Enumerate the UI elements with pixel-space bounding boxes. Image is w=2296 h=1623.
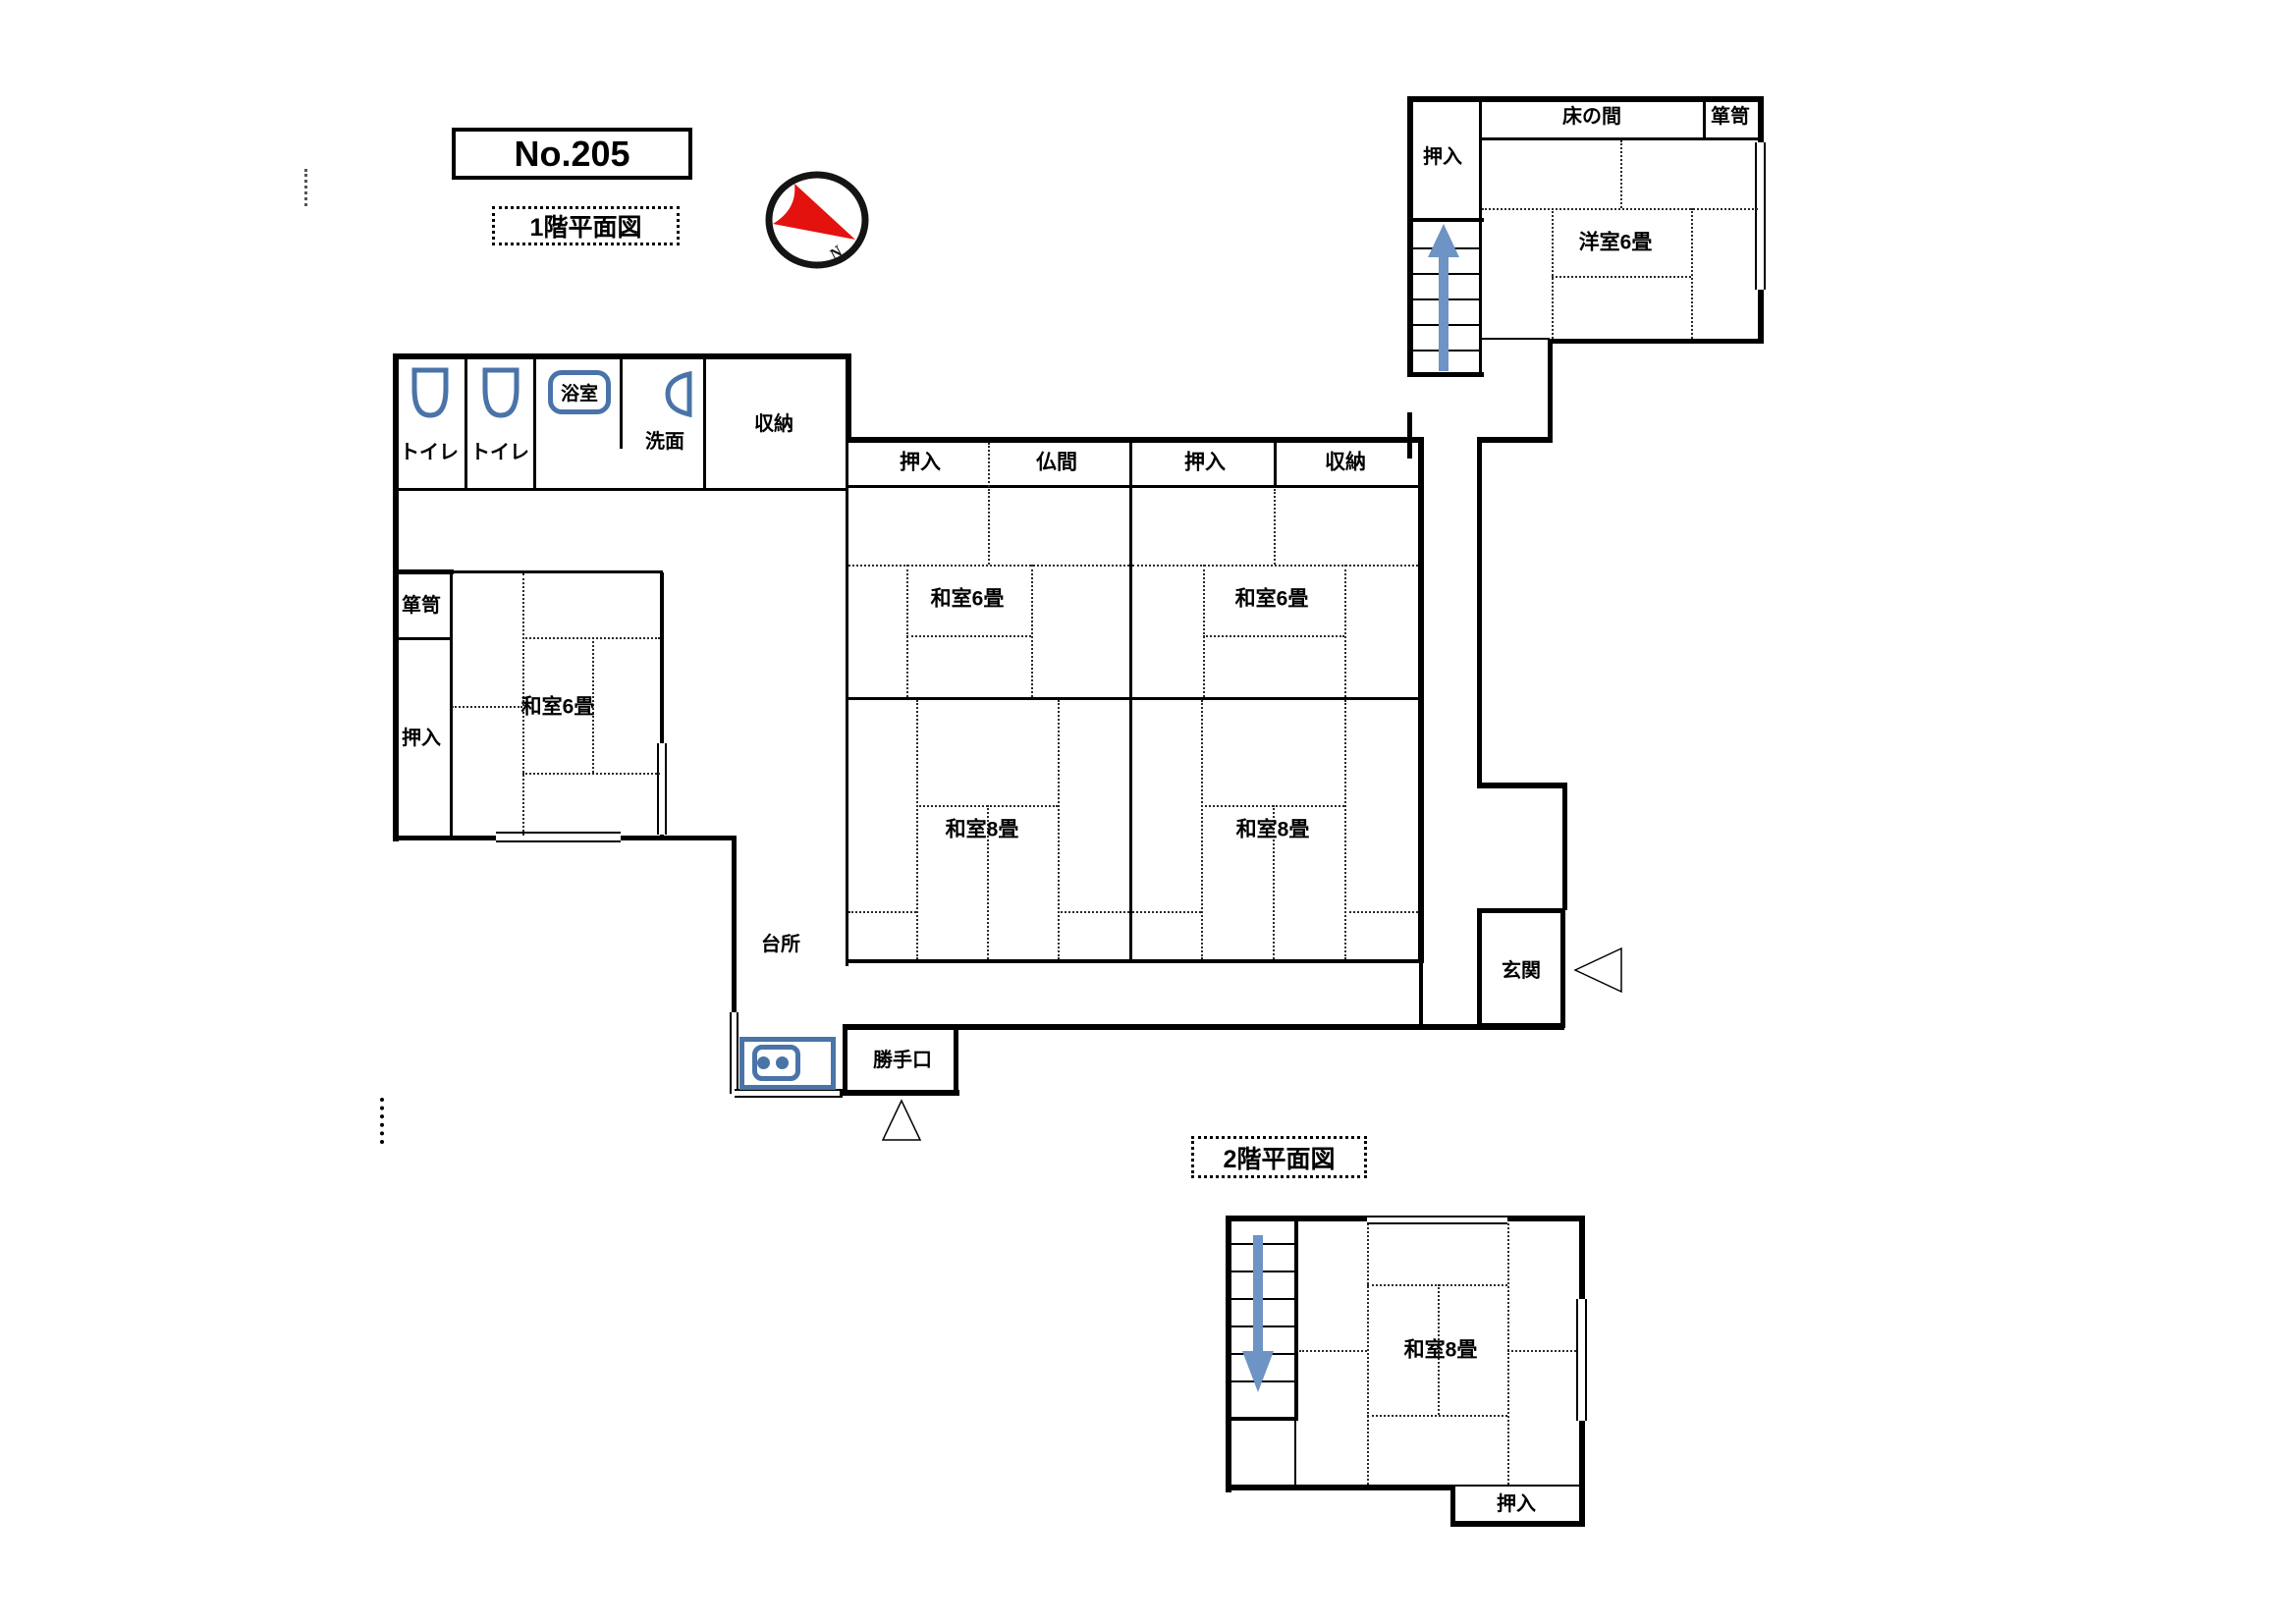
room-washitsu8-2f: 和室8畳: [1404, 1340, 1478, 1361]
room-yoshitsu6: 洋室6畳: [1579, 233, 1653, 253]
wall-segment: [1479, 221, 1482, 377]
entrance-box: 玄関: [1477, 908, 1565, 1028]
wall-segment: [450, 571, 453, 839]
tansu-west: 箪笥: [402, 596, 441, 616]
tatami-line: [1552, 276, 1691, 278]
wall-segment: [1407, 96, 1763, 102]
tatami-line: [1552, 208, 1554, 339]
wall-segment: [846, 443, 848, 966]
floor1-caption: 1階平面図: [530, 208, 642, 243]
wall-segment: [1550, 339, 1763, 344]
plan-number: No.205: [514, 134, 629, 175]
window: [1576, 1299, 1587, 1421]
storage-center: 収納: [1325, 453, 1366, 473]
stairs-up-arrow: [1426, 222, 1461, 375]
wall-segment: [840, 1090, 959, 1096]
closet-b: 押入: [1184, 453, 1226, 473]
compass-icon: N: [761, 167, 874, 275]
tatami-line: [522, 773, 660, 775]
window: [735, 1089, 843, 1098]
window: [730, 1012, 738, 1094]
tatami-line: [916, 700, 918, 959]
tatami-line: [848, 911, 916, 913]
tatami-line: [1299, 1350, 1367, 1352]
tatami-line: [1058, 700, 1060, 959]
room-washstand: 洗面: [645, 432, 684, 452]
wall-segment: [846, 353, 851, 443]
wall-segment: [1479, 96, 1482, 221]
dotted-mark: [380, 1098, 384, 1144]
room-toilet-2: トイレ: [470, 443, 529, 462]
tatami-line: [1367, 1223, 1369, 1485]
wall-segment: [452, 570, 663, 573]
wall-segment: [1274, 437, 1277, 486]
room-kitchen: 台所: [761, 935, 800, 954]
closet-west: 押入: [402, 729, 441, 748]
wall-segment: [1407, 412, 1412, 459]
tatami-line: [1058, 911, 1129, 913]
wall-segment: [393, 353, 399, 841]
closet-northeast: 押入: [1423, 147, 1462, 167]
wall-segment: [843, 1024, 1564, 1030]
room-washitsu6-a: 和室6畳: [931, 589, 1005, 610]
wall-segment: [1477, 437, 1553, 443]
dotted-mark: [304, 169, 307, 206]
toilet-icon: [410, 367, 450, 419]
wall-segment: [533, 353, 536, 491]
wall-segment: [1477, 437, 1482, 787]
tatami-line: [522, 637, 660, 639]
tatami-line: [906, 635, 1031, 637]
wall-segment: [1226, 1417, 1298, 1421]
tatami-line: [1132, 911, 1201, 913]
plan-number-box: No.205: [452, 128, 692, 180]
altar-room: 仏間: [1036, 453, 1077, 473]
window: [657, 743, 667, 835]
wall-segment: [1455, 1485, 1579, 1487]
sink-icon: [662, 370, 695, 418]
wall-segment: [1477, 783, 1567, 788]
tatami-line: [1691, 208, 1693, 339]
tatami-line: [1507, 1350, 1576, 1352]
wall-segment: [1703, 96, 1706, 140]
wall-segment: [1450, 1521, 1585, 1527]
tatami-line: [848, 565, 1129, 567]
room-bath: 浴室: [561, 379, 598, 406]
room-washitsu8-b: 和室8畳: [1236, 820, 1310, 840]
wall-segment: [1294, 1216, 1298, 1421]
window: [1367, 1216, 1507, 1224]
tatami-line: [988, 489, 990, 565]
stairs-down-arrow: [1240, 1229, 1276, 1396]
wall-segment: [1226, 1485, 1455, 1490]
wall-segment: [393, 488, 847, 491]
tansu-northeast: 箪笥: [1711, 107, 1750, 127]
tatami-line: [1344, 700, 1346, 959]
room-washitsu6-b: 和室6畳: [1235, 589, 1309, 610]
floor2-caption: 2階平面図: [1224, 1140, 1336, 1175]
backdoor-direction-triangle: [881, 1098, 922, 1143]
stove-burner: [757, 1056, 770, 1069]
wall-segment: [703, 353, 706, 491]
wall-segment: [846, 959, 1424, 963]
tatami-line: [1203, 635, 1344, 637]
tatami-line: [1132, 565, 1418, 567]
tatami-line: [906, 565, 908, 697]
window: [1755, 142, 1766, 290]
wall-segment: [954, 1029, 958, 1092]
room-storage-utility: 収納: [754, 414, 793, 434]
wall-segment: [620, 353, 623, 449]
wall-segment: [1419, 963, 1423, 1024]
tatami-line: [1201, 700, 1203, 959]
wall-segment: [465, 353, 467, 491]
wall-segment: [1407, 96, 1413, 377]
bathtub-icon: 浴室: [548, 370, 611, 414]
tatami-line: [1031, 565, 1033, 697]
wall-segment: [732, 836, 737, 1015]
toilet-icon: [481, 367, 520, 419]
closet-a: 押入: [900, 453, 941, 473]
wall-segment: [846, 697, 1421, 700]
tatami-line: [1367, 1415, 1507, 1417]
room-washitsu8-a: 和室8畳: [946, 820, 1019, 840]
tatami-line: [1482, 208, 1758, 210]
wall-segment: [393, 569, 454, 574]
tatami-line: [1344, 565, 1346, 697]
entrance-direction-triangle: [1571, 946, 1625, 995]
wall-segment: [846, 437, 1422, 443]
room-entrance: 玄関: [1502, 954, 1541, 983]
floor1-caption-box: 1階平面図: [492, 206, 680, 245]
partition-dotted: [988, 443, 990, 487]
closet-2f: 押入: [1497, 1494, 1536, 1514]
window: [496, 832, 621, 842]
wall-segment: [1562, 788, 1567, 910]
wall-segment: [1481, 338, 1550, 340]
floor2-caption-box: 2階平面図: [1191, 1136, 1367, 1178]
wall-segment: [846, 485, 1422, 488]
tatami-line: [452, 706, 522, 708]
wall-segment: [843, 1029, 847, 1092]
stove-burner: [776, 1056, 789, 1069]
room-backdoor: 勝手口: [873, 1051, 932, 1070]
tatami-line: [1620, 140, 1622, 208]
wall-segment: [393, 637, 452, 640]
tatami-line: [1344, 911, 1418, 913]
wall-segment: [1548, 339, 1553, 442]
tatami-line: [1507, 1223, 1509, 1485]
room-washitsu6-west: 和室6畳: [521, 697, 595, 718]
tatami-line: [1203, 565, 1205, 697]
room-toilet-1: トイレ: [400, 443, 459, 462]
wall-segment: [1294, 1421, 1296, 1487]
floorplan-page: No.205 1階平面図 2階平面図 N トイレ トイレ 浴室 洗面 収納: [0, 0, 2296, 1623]
tokonoma: 床の間: [1562, 107, 1621, 127]
tatami-line: [1274, 489, 1276, 565]
